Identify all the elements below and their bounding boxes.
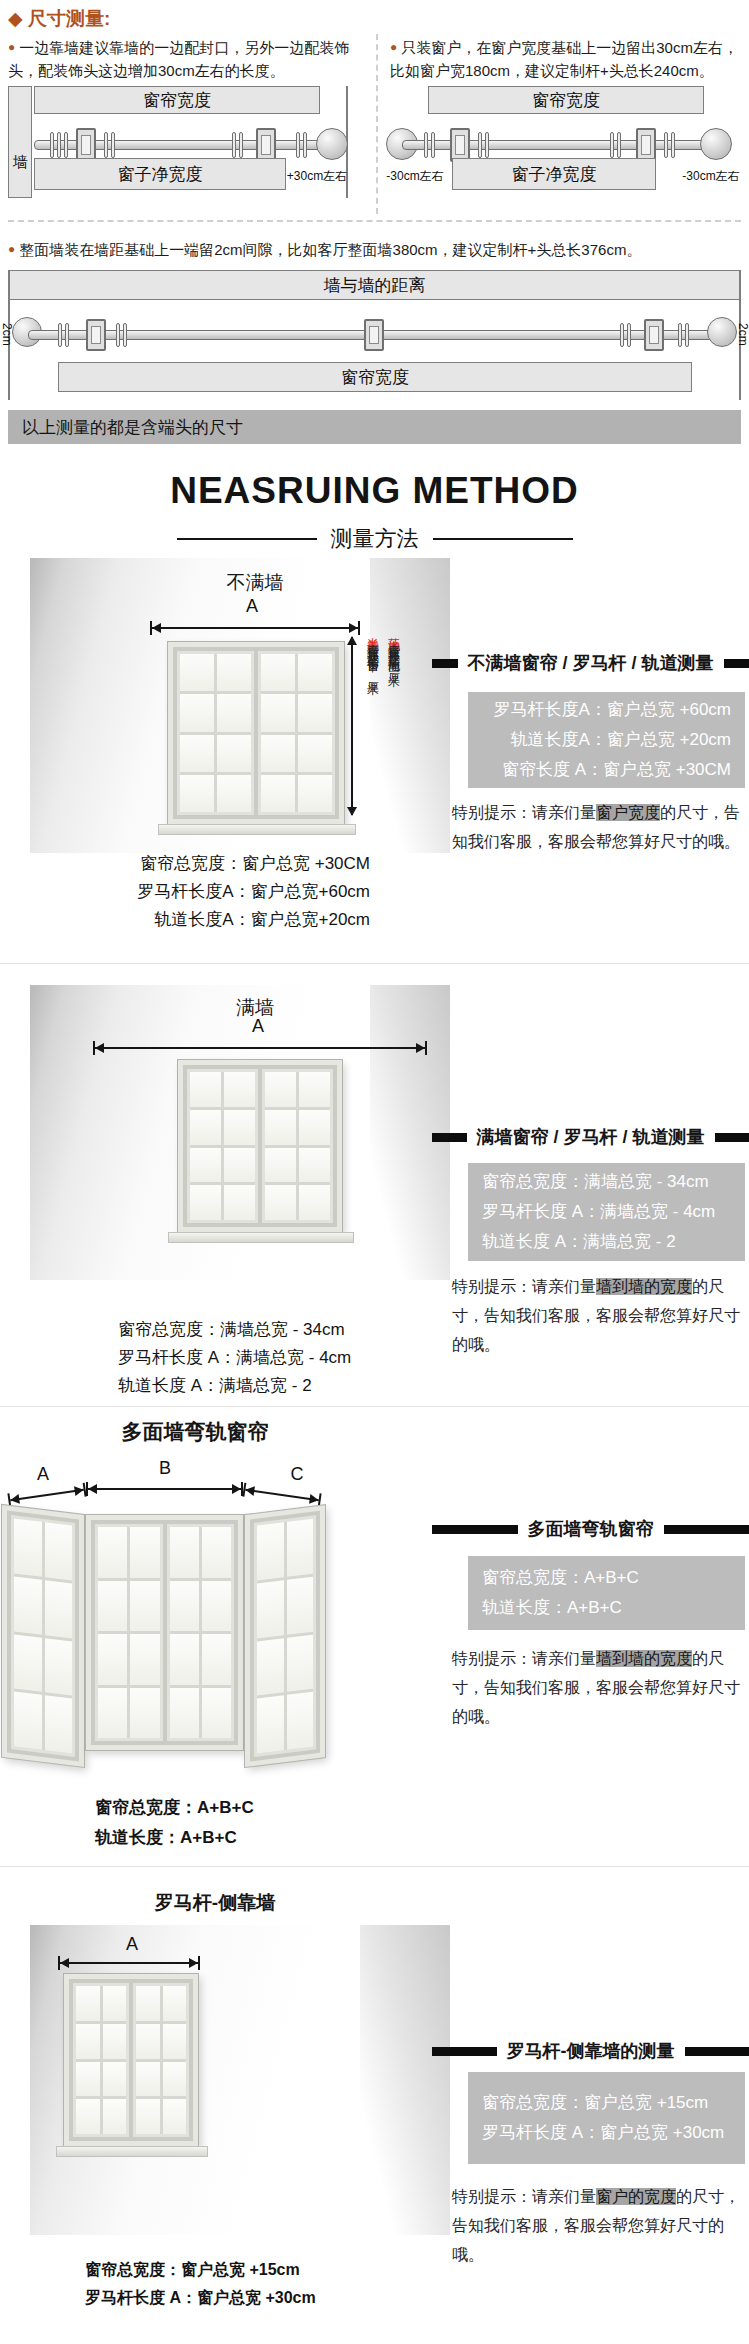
window-pane <box>202 1634 231 1685</box>
dim-arrow-a <box>95 1047 425 1049</box>
window-net-width-bar: 窗子净宽度 <box>452 158 656 190</box>
section4-formula-box: 窗帘总宽度：窗户总宽 +15cm 罗马杆长度 A：窗户总宽 +30cm <box>468 2072 745 2164</box>
tip-prefix: 特别提示：请亲们量 <box>452 1278 596 1295</box>
window-pane <box>190 1110 221 1145</box>
section4-panel-header: 罗马杆-侧靠墙的测量 <box>432 2038 749 2064</box>
window-panes <box>167 1524 235 1741</box>
window-pane <box>202 1527 231 1578</box>
curtain-ring <box>104 132 108 158</box>
bullet-icon: ● <box>8 40 15 54</box>
diamond-icon: ◆ <box>8 8 23 29</box>
window-pane <box>298 654 332 691</box>
dim-arrow-b <box>88 1488 241 1490</box>
window-pane <box>224 1185 255 1220</box>
dim-label-a: A <box>238 1016 278 1037</box>
dim-arrow-vertical <box>351 637 353 815</box>
window-pane <box>265 1110 296 1145</box>
note-half-curtain: 半截帘窗帘挂环开始至窗台下30厘米 <box>362 628 383 860</box>
tip-highlight: 墙到墙的宽度 <box>596 1650 692 1667</box>
curtain-ring <box>678 323 682 347</box>
note-floor-curtain-text: 窗帘挂环开始至离地面2厘米 <box>387 634 401 667</box>
size-measure-heading: ◆ 尺寸测量: <box>8 6 110 32</box>
formula-line: 窗帘总宽度：窗户总宽 +30CM <box>40 850 370 878</box>
section-separator <box>0 963 749 964</box>
window-pane <box>136 1986 160 2021</box>
curtain-ring <box>232 132 236 158</box>
window-pane <box>261 694 295 731</box>
curtain-ring <box>671 132 675 158</box>
dim-label-a: A <box>232 596 272 617</box>
window-pane <box>299 1185 330 1220</box>
curtain-ring <box>111 132 115 158</box>
window-pane <box>136 2062 160 2097</box>
formula-line: 轨道长度：A+B+C <box>95 1823 335 1853</box>
window-pane <box>190 1072 221 1107</box>
dim-arrow-c <box>245 1489 319 1501</box>
curtain-ring <box>65 323 69 347</box>
window-pane <box>257 1696 284 1754</box>
section3-title: 多面墙弯轨窗帘 <box>60 1418 330 1446</box>
window-panes <box>262 1069 333 1223</box>
section4-panel-title: 罗马杆-侧靠墙的测量 <box>497 2039 685 2063</box>
window-pane <box>14 1518 42 1576</box>
header-bar <box>685 2047 749 2056</box>
window-pane <box>190 1185 221 1220</box>
notice-bar: 以上测量的都是含端头的尺寸 <box>8 410 741 444</box>
window-pane <box>180 735 214 772</box>
curtain-ring <box>58 323 62 347</box>
section-separator <box>0 1406 749 1407</box>
header-bar <box>432 659 458 668</box>
tip-full-wall-text: 整面墙装在墙距基础上一端留2cm间隙，比如客厅整面墙380cm，建议定制杆+头总… <box>19 241 641 258</box>
size-measure-heading-text: 尺寸测量: <box>28 8 110 29</box>
tip-prefix: 特别提示：请亲们量 <box>452 1650 596 1667</box>
window-pane <box>136 2024 160 2059</box>
window-sill <box>168 1232 354 1243</box>
curtain-ring <box>478 132 482 158</box>
section1-formula-box: 罗马杆长度A：窗户总宽 +60cm 轨道长度A：窗户总宽 +20cm 窗帘长度 … <box>468 692 745 788</box>
window-pane <box>299 1148 330 1183</box>
window-panes <box>133 1983 189 2137</box>
dim-arrow-a <box>10 1489 84 1501</box>
window-pane <box>98 1581 127 1632</box>
window-net-width-bar: 窗子净宽度 <box>34 158 286 190</box>
section1-tip: 特别提示：请亲们量窗户宽度的尺寸，告知我们客服，客服会帮您算好尺寸的哦。 <box>452 798 746 856</box>
window-pane <box>257 1580 284 1638</box>
window-panes <box>95 1524 163 1741</box>
page: ◆ 尺寸测量: ●一边靠墙建议靠墙的一边配封口，另外一边配装饰头，配装饰头这边增… <box>0 0 749 2344</box>
rod-bracket <box>450 128 470 162</box>
formula-line: 罗马杆长度A：窗户总宽+60cm <box>40 878 370 906</box>
curtain-width-label: 窗帘宽度 <box>532 89 600 112</box>
window <box>178 1060 342 1232</box>
window-pane <box>298 775 332 812</box>
window-pane <box>163 2062 187 2097</box>
window-panes <box>73 1983 129 2137</box>
curtain-width-bar: 窗帘宽度 <box>58 362 692 392</box>
formula-line: 窗帘总宽度：A+B+C <box>95 1793 335 1823</box>
window-panes <box>187 1069 258 1223</box>
dim-arrow-a <box>60 1962 198 1964</box>
section1-panel-header: 不满墙窗帘 / 罗马杆 / 轨道测量 <box>432 650 749 676</box>
curtain-width-bar: 窗帘宽度 <box>428 86 704 114</box>
section3-tip: 特别提示：请亲们量墙到墙的宽度的尺寸，告知我们客服，客服会帮您算好尺寸的哦。 <box>452 1644 746 1731</box>
window-panes <box>177 651 254 815</box>
section1-title: 不满墙 <box>155 570 355 596</box>
window-pane <box>265 1072 296 1107</box>
header-bar <box>724 659 749 668</box>
title-rule-right <box>433 538 573 540</box>
curtain-ring <box>57 132 61 158</box>
header-bar <box>432 2047 497 2056</box>
page-title-en: NEASRUING METHOD <box>0 470 749 512</box>
window-pane <box>98 1634 127 1685</box>
window-pane <box>287 1519 314 1577</box>
window-pane <box>45 1522 73 1580</box>
section1-panel-title: 不满墙窗帘 / 罗马杆 / 轨道测量 <box>458 651 724 675</box>
rod-bracket <box>364 319 384 351</box>
tip-highlight: 窗户的宽度 <box>596 2188 676 2205</box>
window-pane <box>180 775 214 812</box>
room-right-wall <box>360 1925 450 2235</box>
window-pane <box>298 735 332 772</box>
window <box>168 642 344 824</box>
formula-line: 窗帘总宽度：窗户总宽 +15cm <box>85 2256 365 2284</box>
header-bar <box>664 1525 749 1534</box>
curtain-ring <box>617 132 621 158</box>
formula-line: 窗帘总宽度：满墙总宽 - 34cm <box>118 1316 418 1344</box>
section2-tip: 特别提示：请亲们量墙到墙的宽度的尺寸，告知我们客服，客服会帮您算好尺寸的哦。 <box>452 1272 746 1359</box>
box-line: 窗帘总宽度：满墙总宽 - 34cm <box>482 1167 745 1197</box>
window-pane <box>163 1986 187 2021</box>
curtain-width-label: 窗帘宽度 <box>143 89 211 112</box>
tip-window-only-text: 只装窗户，在窗户宽度基础上一边留出30cm左右，比如窗户宽180cm，建议定制杆… <box>390 39 738 79</box>
wall-to-wall-bar: 墙与墙的距离 <box>8 270 741 300</box>
window-pane <box>103 1986 127 2021</box>
window-pane <box>130 1581 159 1632</box>
curtain-ring <box>303 132 307 158</box>
window-pane <box>261 775 295 812</box>
window-pane <box>103 2099 127 2134</box>
box-line: 窗帘长度 A：窗户总宽 +30CM <box>468 755 731 785</box>
curtain-ring <box>664 132 668 158</box>
section1-formulas: 窗帘总宽度：窗户总宽 +30CM 罗马杆长度A：窗户总宽+60cm 轨道长度A：… <box>40 850 370 934</box>
window-pane <box>130 1527 159 1578</box>
window-pane <box>257 1522 284 1580</box>
window-pane <box>76 2024 100 2059</box>
window-pane <box>98 1527 127 1578</box>
minus30-note-right: -30cm左右 <box>678 168 744 185</box>
curtain-ring <box>685 323 689 347</box>
window-pane <box>136 2099 160 2134</box>
section3-formulas: 窗帘总宽度：A+B+C 轨道长度：A+B+C <box>95 1793 335 1853</box>
section2-formulas: 窗帘总宽度：满墙总宽 - 34cm 罗马杆长度 A：满墙总宽 - 4cm 轨道长… <box>118 1316 418 1400</box>
window-pane <box>170 1634 199 1685</box>
notice-text: 以上测量的都是含端头的尺寸 <box>22 416 243 439</box>
window-pane <box>45 1695 73 1753</box>
window-pane <box>261 654 295 691</box>
tip-prefix: 特别提示：请亲们量 <box>452 804 596 821</box>
box-line: 轨道长度：A+B+C <box>482 1593 745 1623</box>
window-pane <box>257 1638 284 1696</box>
box-line: 窗帘总宽度：A+B+C <box>482 1563 745 1593</box>
rod-bracket <box>86 319 106 351</box>
formula-line: 轨道长度A：窗户总宽+20cm <box>40 906 370 934</box>
bay-window-right <box>245 1505 325 1767</box>
window-pane <box>202 1581 231 1632</box>
window-pane <box>299 1072 330 1107</box>
finial-ball <box>316 128 348 160</box>
header-bar <box>432 1525 518 1534</box>
window <box>64 1974 198 2146</box>
window-panes <box>258 651 335 815</box>
window-pane <box>98 1688 127 1739</box>
window-pane <box>265 1185 296 1220</box>
section3-panel-title: 多面墙弯轨窗帘 <box>518 1517 664 1541</box>
note-half-curtain-text: 窗帘挂环开始至窗台下30厘米 <box>366 634 380 675</box>
note-floor-curtain: 落地帘窗帘挂环开始至离地面2厘米 <box>383 628 404 860</box>
tip-highlight: 墙到墙的宽度 <box>596 1278 692 1295</box>
section2-panel-header: 满墙窗帘 / 罗马杆 / 轨道测量 <box>432 1124 749 1150</box>
window-pane <box>287 1576 314 1634</box>
window-pane <box>14 1576 42 1634</box>
window-pane <box>224 1148 255 1183</box>
window-pane <box>170 1527 199 1578</box>
bay-window-left <box>2 1505 84 1767</box>
window-panes <box>11 1515 75 1757</box>
minus30-note-left: -30cm左右 <box>382 168 448 185</box>
bullet-icon: ● <box>8 242 15 256</box>
formula-line: 轨道长度 A：满墙总宽 - 2 <box>118 1372 418 1400</box>
window-pane <box>103 2062 127 2097</box>
gap-right-label: 2cm <box>736 312 749 356</box>
tip-prefix: 特别提示：请亲们量 <box>452 2188 596 2205</box>
wall-to-wall-label: 墙与墙的距离 <box>324 274 426 297</box>
window-pane <box>287 1634 314 1692</box>
bullet-icon: ● <box>390 40 397 54</box>
window-pane <box>217 694 251 731</box>
tip-wall-side: ●一边靠墙建议靠墙的一边配封口，另外一边配装饰头，配装饰头这边增加30cm左右的… <box>8 36 364 82</box>
section3-formula-box: 窗帘总宽度：A+B+C 轨道长度：A+B+C <box>468 1556 745 1630</box>
page-title-zh: 测量方法 <box>0 524 749 554</box>
window-pane <box>14 1634 42 1692</box>
window-pane <box>217 654 251 691</box>
rod-bracket <box>256 128 276 162</box>
window-pane <box>130 1688 159 1739</box>
window-pane <box>163 2024 187 2059</box>
window-pane <box>130 1634 159 1685</box>
curtain-ring <box>123 323 127 347</box>
curtain-ring <box>296 132 300 158</box>
window-pane <box>180 694 214 731</box>
window-pane <box>76 2099 100 2134</box>
header-bar <box>715 1133 749 1142</box>
window-pane <box>170 1688 199 1739</box>
rod-bracket <box>644 319 664 351</box>
window-sill <box>56 2146 208 2157</box>
plus30-note: +30cm左右 <box>286 168 348 185</box>
box-line: 罗马杆长度A：窗户总宽 +60cm <box>468 695 731 725</box>
section3-panel-header: 多面墙弯轨窗帘 <box>432 1516 749 1542</box>
window-pane <box>76 1986 100 2021</box>
curtain-ring <box>610 132 614 158</box>
section-divider-dashed <box>8 220 741 222</box>
finial-ball <box>707 317 737 347</box>
rod-bracket <box>76 128 96 162</box>
window-pane <box>217 735 251 772</box>
section2-panel-title: 满墙窗帘 / 罗马杆 / 轨道测量 <box>467 1125 715 1149</box>
box-line: 轨道长度 A：满墙总宽 - 2 <box>482 1227 745 1257</box>
window-pane <box>261 735 295 772</box>
box-line: 罗马杆长度 A：窗户总宽 +30cm <box>482 2118 745 2148</box>
window-pane <box>298 694 332 731</box>
page-title-zh-text: 测量方法 <box>331 524 419 554</box>
window-pane <box>103 2024 127 2059</box>
section4-formulas: 窗帘总宽度：窗户总宽 +15cm 罗马杆长度 A：窗户总宽 +30cm <box>85 2256 365 2312</box>
dim-label-a: A <box>28 1464 58 1485</box>
dim-label-a: A <box>112 1934 152 1955</box>
window-pane <box>265 1148 296 1183</box>
dim-arrow-a <box>152 627 358 629</box>
window-pane <box>287 1692 314 1750</box>
wall-label-bar: 墙 <box>8 86 32 198</box>
window-sill <box>158 824 356 835</box>
header-bar <box>432 1133 467 1142</box>
window-pane <box>14 1692 42 1750</box>
window-pane <box>224 1110 255 1145</box>
curtain-length-notes: 落地帘窗帘挂环开始至离地面2厘米 半截帘窗帘挂环开始至窗台下30厘米 <box>362 628 404 860</box>
curtain-ring <box>50 132 54 158</box>
window-pane <box>170 1581 199 1632</box>
curtain-ring <box>239 132 243 158</box>
dim-label-c: C <box>282 1464 312 1485</box>
window-pane <box>190 1148 221 1183</box>
window-pane <box>202 1688 231 1739</box>
window-pane <box>217 775 251 812</box>
window-pane <box>45 1580 73 1638</box>
window-net-width-label: 窗子净宽度 <box>512 163 597 186</box>
box-line: 窗帘总宽度：窗户总宽 +15cm <box>482 2088 745 2118</box>
tip-highlight: 窗户宽度 <box>596 804 660 821</box>
tip-window-only: ●只装窗户，在窗户宽度基础上一边留出30cm左右，比如窗户宽180cm，建议定制… <box>390 36 742 82</box>
window-pane <box>76 2062 100 2097</box>
column-divider <box>376 34 378 214</box>
dim-label-b: B <box>150 1458 180 1479</box>
box-line: 轨道长度A：窗户总宽 +20cm <box>468 725 731 755</box>
window-pane <box>45 1638 73 1696</box>
title-rule-left <box>177 538 317 540</box>
curtain-ring <box>620 323 624 347</box>
window-pane <box>180 654 214 691</box>
window-pane <box>224 1072 255 1107</box>
curtain-ring <box>116 323 120 347</box>
rod-bracket <box>636 128 656 162</box>
curtain-ring <box>431 132 435 158</box>
formula-line: 罗马杆长度 A：窗户总宽 +30cm <box>85 2284 365 2312</box>
window-net-width-label: 窗子净宽度 <box>118 163 203 186</box>
section4-tip: 特别提示：请亲们量窗户的宽度的尺寸，告知我们客服，客服会帮您算好尺寸的哦。 <box>452 2182 746 2269</box>
window-pane <box>299 1110 330 1145</box>
finial-ball <box>700 128 732 160</box>
bay-window-center <box>86 1515 243 1750</box>
curtain-ring <box>627 323 631 347</box>
window-panes <box>254 1515 316 1757</box>
section-separator <box>0 1866 749 1867</box>
curtain-ring <box>64 132 68 158</box>
formula-line: 罗马杆长度 A：满墙总宽 - 4cm <box>118 1344 418 1372</box>
section4-title: 罗马杆-侧靠墙 <box>110 1890 320 1916</box>
curtain-ring <box>485 132 489 158</box>
section2-formula-box: 窗帘总宽度：满墙总宽 - 34cm 罗马杆长度 A：满墙总宽 - 4cm 轨道长… <box>468 1163 745 1261</box>
tip-full-wall: ●整面墙装在墙距基础上一端留2cm间隙，比如客厅整面墙380cm，建议定制杆+头… <box>8 238 742 261</box>
curtain-width-label: 窗帘宽度 <box>341 366 409 389</box>
curtain-ring <box>424 132 428 158</box>
curtain-width-bar: 窗帘宽度 <box>34 86 320 114</box>
window-pane <box>163 2099 187 2134</box>
box-line: 罗马杆长度 A：满墙总宽 - 4cm <box>482 1197 745 1227</box>
tip-wall-side-text: 一边靠墙建议靠墙的一边配封口，另外一边配装饰头，配装饰头这边增加30cm左右的长… <box>8 39 349 79</box>
